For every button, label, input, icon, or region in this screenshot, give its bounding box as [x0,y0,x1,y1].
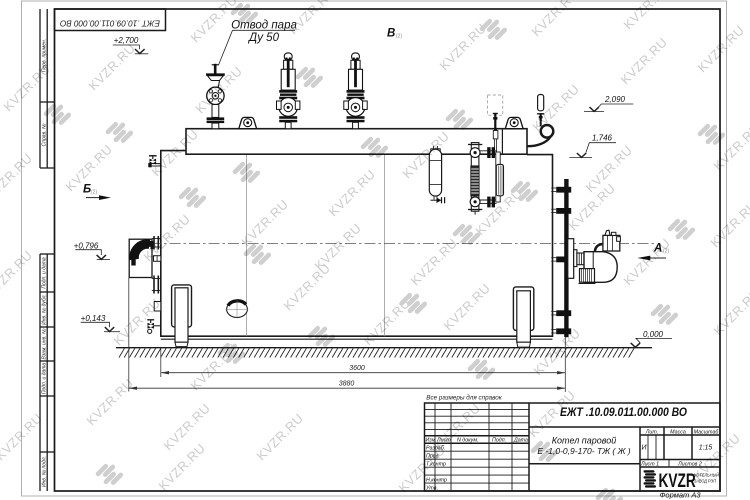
svg-text:1:15: 1:15 [699,445,713,452]
svg-text:Б: Б [83,184,91,196]
svg-text:Масса: Масса [670,429,686,435]
svg-text:Ду 50: Ду 50 [247,32,280,44]
svg-text:ЕЖТ .10.09.011.00.000 ВО: ЕЖТ .10.09.011.00.000 ВО [560,405,688,419]
svg-text:1,746: 1,746 [592,134,613,143]
svg-text:0,000: 0,000 [643,330,664,339]
svg-text:N докум.: N докум. [457,438,478,444]
svg-text:+0,796: +0,796 [74,241,99,250]
svg-text:Инв. № подл.: Инв. № подл. [42,456,48,487]
svg-text:(2): (2) [91,190,97,196]
svg-text:Утв.: Утв. [426,485,438,491]
svg-text:(2): (2) [396,34,402,40]
svg-text:Лист 1: Лист 1 [640,461,659,467]
svg-text:Подп. и дата: Подп. и дата [42,257,48,289]
svg-text:Формат А3: Формат А3 [659,491,701,500]
svg-text:3600: 3600 [349,365,365,372]
svg-text:Лит.: Лит. [645,429,658,435]
svg-text:Котел паровой: Котел паровой [552,436,617,446]
svg-text:Дата: Дата [513,438,528,444]
svg-text:Подп.: Подп. [492,438,506,444]
svg-text:В: В [387,28,395,40]
svg-text:Масштаб: Масштаб [694,429,720,435]
svg-text:Все размеры для справок: Все размеры для справок [426,394,502,402]
svg-text:+0,143: +0,143 [81,314,106,323]
svg-text:Н.контр: Н.контр [426,478,447,484]
svg-text:3880: 3880 [339,380,355,387]
svg-text:ЕЖТ .10.09.011.00.000 ВО: ЕЖТ .10.09.011.00.000 ВО [60,18,160,28]
svg-text:Взам. инв. №: Взам. инв. № [42,328,48,360]
svg-text:Инв. № дубл.: Инв. № дубл. [42,294,48,325]
svg-text:2,090: 2,090 [604,95,626,104]
svg-text:Справ. №: Справ. № [42,123,48,146]
svg-text:Подп. и дата: Подп. и дата [42,363,48,395]
